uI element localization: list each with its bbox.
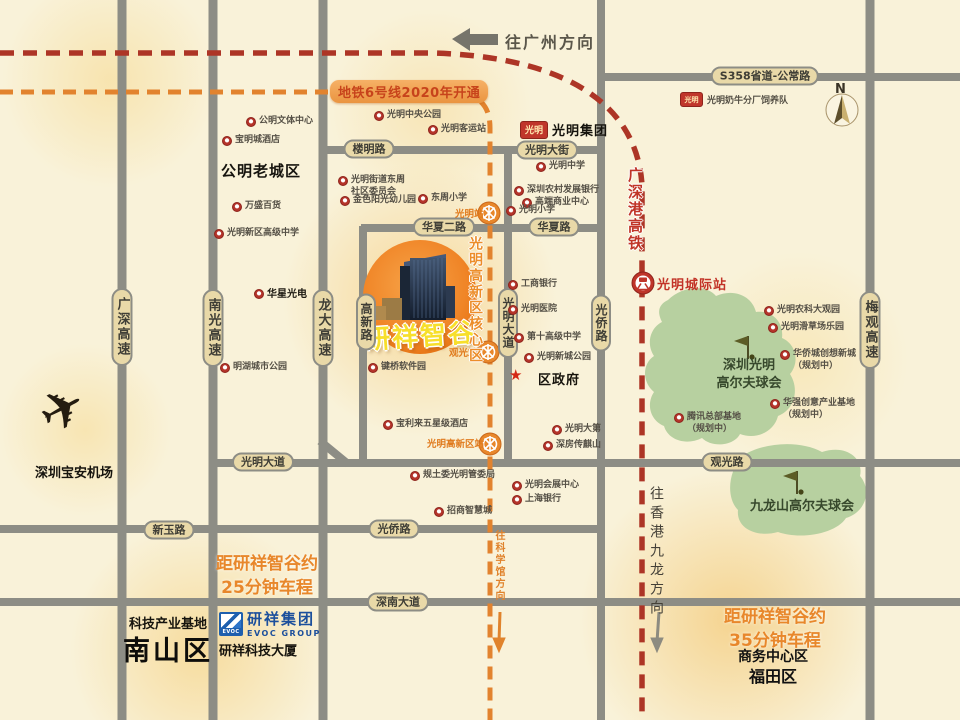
poi-label: 深圳农村发展银行	[527, 185, 599, 197]
hsr-line-label: 广深港高铁	[625, 167, 646, 252]
poi-item: 光明小学	[506, 205, 555, 217]
poi-dot-icon	[764, 306, 774, 316]
poi-item: 深房传麒山	[543, 440, 601, 452]
poi-label: 规土委光明管委局	[423, 470, 495, 482]
poi-dot-icon	[222, 136, 232, 146]
poi-dot-icon	[536, 162, 546, 172]
poi-label: 光明中学	[549, 161, 585, 173]
road-label: 梅观高速	[860, 291, 881, 369]
poi-dot-icon	[506, 206, 516, 216]
poi-label: 华侨城创想新城 （规划中）	[793, 349, 856, 372]
poi-item: 明湖城市公园	[220, 362, 287, 374]
poi-dot-icon	[434, 507, 444, 517]
poi-item: 宝明城酒店	[222, 135, 280, 147]
poi-item: 华强创意产业基地 （规划中）	[770, 398, 855, 421]
road-label: 华夏二路	[413, 218, 475, 237]
metro-station-hightech: 光明高新区站	[427, 436, 484, 450]
poi-label: 万盛百货	[245, 201, 281, 213]
poi-item: 腾讯总部基地 （规划中）	[674, 412, 741, 435]
poi-dot-icon	[514, 186, 524, 196]
poi-dot-icon	[512, 481, 522, 491]
poi-label: 光明农科大观园	[777, 305, 840, 317]
poi-item: 光明新区高级中学	[214, 228, 299, 240]
poi-label: 明湖城市公园	[233, 362, 287, 374]
poi-dot-icon	[232, 202, 242, 212]
poi-item: 招商智慧城	[434, 506, 492, 518]
district-nanshan-label: 南山区	[123, 629, 213, 668]
poi-item: 深圳农村发展银行	[514, 185, 599, 197]
poi-item: 光明滑草场乐园	[768, 322, 844, 334]
compass-n-label: N	[835, 82, 846, 97]
poi-label: 光明医院	[521, 304, 557, 316]
road-label: 南光高速	[203, 289, 224, 367]
shenzhen-guangming-golf-label: 深圳光明 高尔夫球会	[716, 357, 781, 392]
poi-label: 腾讯总部基地 （规划中）	[687, 412, 741, 435]
poi-item: 光明会展中心	[512, 480, 579, 492]
poi-label: 光明滑草场乐园	[781, 322, 844, 334]
road-label: 光侨路	[369, 520, 420, 539]
poi-label: 华强创意产业基地 （规划中）	[783, 398, 855, 421]
drive-time-25min-label: 距研祥智谷约 25分钟车程	[216, 553, 318, 601]
poi-dot-icon	[508, 305, 518, 315]
road-label: 高新路	[356, 294, 376, 351]
poi-label: 宝明城酒店	[235, 135, 280, 147]
poi-dot-icon	[418, 194, 428, 204]
poi-label: 招商智慧城	[447, 506, 492, 518]
road-label: 光明大街	[516, 141, 578, 160]
road-label: 光明大道	[498, 288, 518, 358]
poi-label: 上海银行	[525, 494, 561, 506]
poi-item: 公明文体中心	[246, 116, 313, 128]
poi-label: 工商银行	[521, 279, 557, 291]
poi-item: 光明医院	[508, 304, 557, 316]
toward-guangzhou-label: 往广州方向	[505, 29, 595, 53]
poi-dot-icon	[512, 495, 522, 505]
road-label: 观光路	[702, 453, 753, 472]
poi-item: 金色阳光幼儿园	[340, 195, 416, 207]
government-star-icon: ★	[509, 366, 522, 384]
poi-label: 光明中央公园	[387, 110, 441, 122]
poi-label: 宝利来五星级酒店	[396, 419, 468, 431]
poi-dot-icon	[543, 441, 553, 451]
poi-dot-icon	[552, 425, 562, 435]
poi-label: 键桥软件园	[381, 362, 426, 374]
poi-label: 光明小学	[519, 205, 555, 217]
airport-label: 深圳宝安机场	[35, 462, 113, 481]
poi-item: 华星光电	[254, 288, 307, 301]
district-gongming-old-town: 公明老城区	[221, 160, 301, 181]
poi-item: 东周小学	[418, 193, 467, 205]
poi-dot-icon	[410, 471, 420, 481]
poi-label: 光明大第	[565, 424, 601, 436]
poi-label: 深房传麒山	[556, 440, 601, 452]
jiulongshan-golf-label: 九龙山高尔夫球会	[750, 498, 854, 516]
poi-label: 第十高级中学	[527, 332, 581, 344]
poi-item: 光明农科大观园	[764, 305, 840, 317]
toward-science-museum-label: 往科学馆方向	[491, 530, 506, 602]
guangming-location-map: 地铁6号线2020年开通 光明 光明集团 光明 光明奶牛分厂饲养队 EVOC 研…	[0, 0, 960, 720]
poi-dot-icon	[374, 111, 384, 121]
guangming-intercity-station-label: 光明城际站	[657, 274, 727, 293]
poi-item: 华侨城创想新城 （规划中）	[780, 349, 856, 372]
poi-label: 光明新城公园	[537, 352, 591, 364]
poi-label: 华星光电	[267, 288, 307, 301]
poi-item: 键桥软件园	[368, 362, 426, 374]
poi-dot-icon	[338, 176, 348, 186]
poi-dot-icon	[770, 399, 780, 409]
poi-dot-icon	[674, 413, 684, 423]
poi-item: 光明新城公园	[524, 352, 591, 364]
map-labels-layer: S358省道-公常路楼明路光明大街华夏二路华夏路光明大道观光路新玉路光侨路深南大…	[0, 0, 960, 720]
poi-item: 光明大第	[552, 424, 601, 436]
road-label: 华夏路	[529, 218, 580, 237]
road-label: 深南大道	[367, 593, 429, 612]
poi-dot-icon	[254, 289, 264, 299]
poi-dot-icon	[524, 353, 534, 363]
poi-item: 第十高级中学	[514, 332, 581, 344]
poi-dot-icon	[220, 363, 230, 373]
poi-item: 工商银行	[508, 279, 557, 291]
district-government-label: 区政府	[538, 369, 580, 388]
poi-item: 宝利来五星级酒店	[383, 419, 468, 431]
poi-dot-icon	[428, 125, 438, 135]
metro-station-guangming: 光明站	[455, 206, 484, 220]
road-label: 楼明路	[344, 140, 395, 159]
poi-label: 金色阳光幼儿园	[353, 195, 416, 207]
hightech-core-zone-label: 光明高新区核心区	[465, 236, 485, 364]
road-label-s358: S358省道-公常路	[711, 67, 819, 86]
district-futian-label: 福田区	[749, 663, 797, 687]
poi-dot-icon	[214, 229, 224, 239]
poi-dot-icon	[768, 323, 778, 333]
poi-item: 上海银行	[512, 494, 561, 506]
poi-label: 光明客运站	[441, 124, 486, 136]
poi-label: 东周小学	[431, 193, 467, 205]
poi-item: 光明中央公园	[374, 110, 441, 122]
road-label: 龙大高速	[313, 289, 334, 367]
road-label: 光侨路	[591, 295, 611, 352]
road-label: 广深高速	[112, 288, 133, 366]
toward-hongkong-label: 往香港九龙方向	[646, 486, 666, 619]
road-label: 新玉路	[144, 521, 195, 540]
poi-dot-icon	[246, 117, 256, 127]
poi-item: 万盛百货	[232, 201, 281, 213]
evoc-tower-label: 研祥科技大厦	[219, 640, 297, 659]
poi-label: 公明文体中心	[259, 116, 313, 128]
poi-dot-icon	[383, 420, 393, 430]
poi-item: 光明客运站	[428, 124, 486, 136]
poi-item: 规土委光明管委局	[410, 470, 495, 482]
poi-dot-icon	[340, 196, 350, 206]
poi-label: 光明新区高级中学	[227, 228, 299, 240]
poi-label: 光明会展中心	[525, 480, 579, 492]
poi-item: 光明中学	[536, 161, 585, 173]
poi-dot-icon	[514, 333, 524, 343]
road-label: 光明大道	[232, 453, 294, 472]
poi-dot-icon	[368, 363, 378, 373]
poi-dot-icon	[508, 280, 518, 290]
